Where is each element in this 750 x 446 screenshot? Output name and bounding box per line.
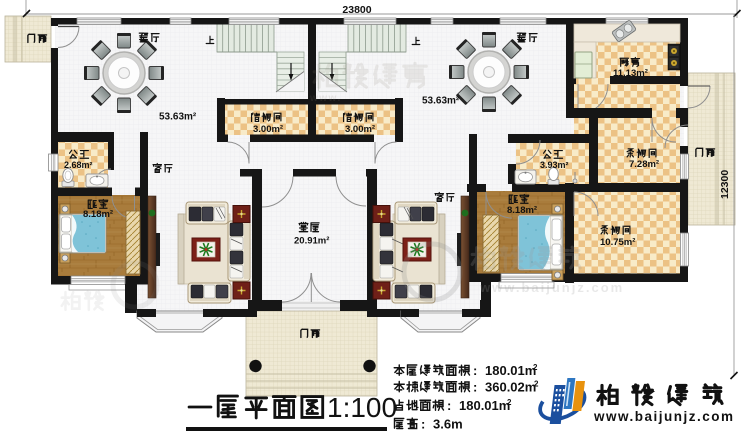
svg-text:8.18m²: 8.18m²: [83, 209, 113, 220]
svg-text::: :: [421, 417, 425, 432]
svg-text:www.baijunjz.com: www.baijunjz.com: [593, 409, 735, 424]
svg-text:3.93m²: 3.93m²: [540, 160, 569, 170]
svg-text:8.18m²: 8.18m²: [507, 205, 537, 216]
svg-text:53.63m²: 53.63m²: [159, 112, 197, 123]
svg-text:www.: www.: [309, 93, 342, 104]
svg-text::: :: [473, 380, 477, 395]
svg-text:1:100: 1:100: [327, 392, 397, 423]
svg-text:3.00m²: 3.00m²: [253, 124, 283, 135]
svg-text:2.68m²: 2.68m²: [64, 160, 93, 170]
svg-text:2: 2: [534, 380, 539, 389]
svg-text:7.28m²: 7.28m²: [629, 159, 659, 170]
svg-text:53.63m²: 53.63m²: [422, 96, 460, 107]
svg-text:180.01m: 180.01m: [485, 363, 536, 378]
svg-text:www.baijunjz.com: www.baijunjz.com: [479, 280, 624, 295]
svg-text:2: 2: [533, 363, 538, 372]
svg-text:12300: 12300: [719, 170, 731, 199]
svg-text:3.6m: 3.6m: [433, 417, 463, 432]
svg-text:2: 2: [507, 398, 512, 407]
svg-text:180.01m: 180.01m: [459, 398, 510, 413]
svg-text:11.13m²: 11.13m²: [613, 68, 648, 79]
svg-text:20.91m²: 20.91m²: [294, 236, 329, 247]
svg-text:360.02m: 360.02m: [485, 380, 536, 395]
svg-text::: :: [447, 398, 451, 413]
svg-text:10.75m²: 10.75m²: [600, 237, 635, 248]
svg-text::: :: [473, 363, 477, 378]
svg-text:3.00m²: 3.00m²: [345, 124, 375, 135]
svg-text:23800: 23800: [342, 4, 371, 16]
